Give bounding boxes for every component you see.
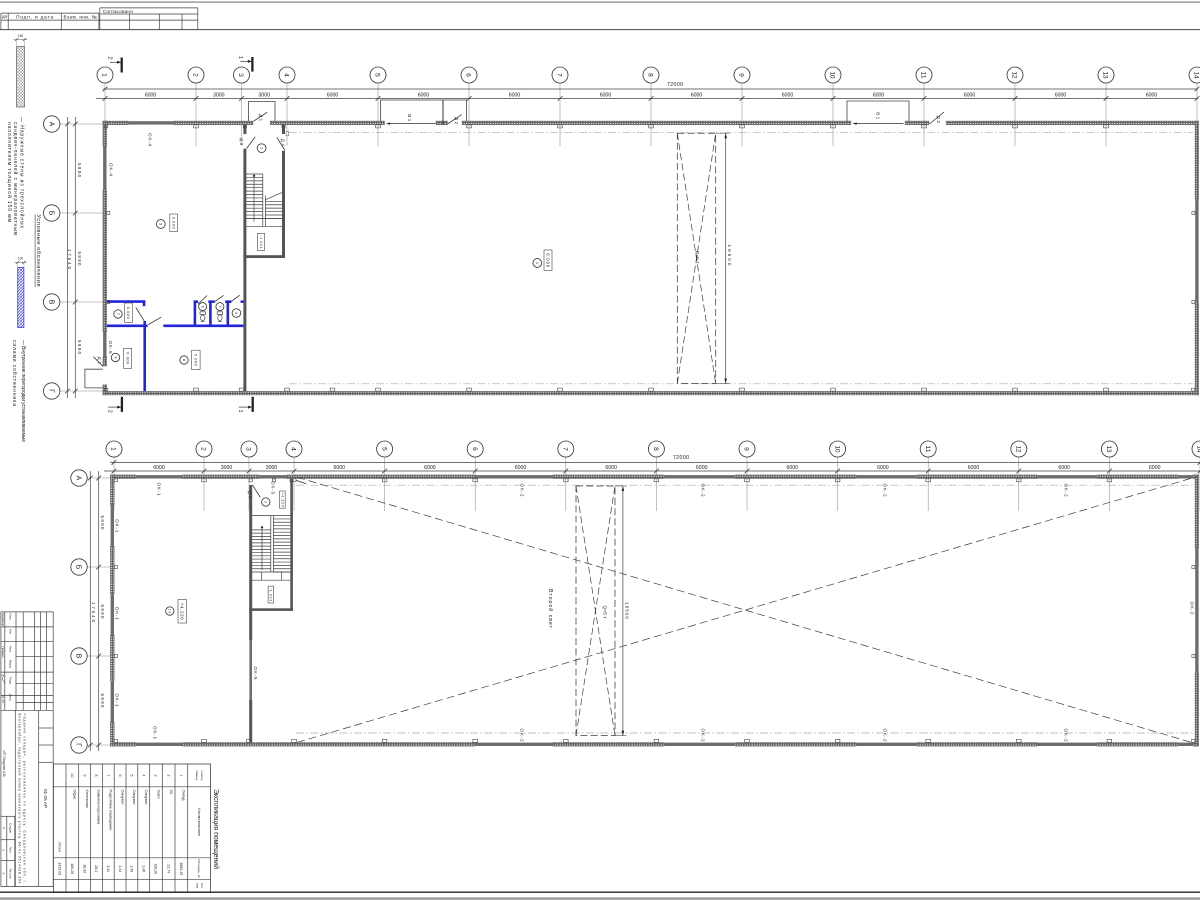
svg-text:10: 10 [168,609,172,614]
svg-text:6000: 6000 [515,465,527,471]
svg-text:8: 8 [647,73,654,77]
svg-text:— Наружные стены из трехслойны: — Наружные стены из трехслойных [18,117,25,229]
svg-text:Д2: Д2 [97,357,102,365]
svg-text:Б: Б [47,211,54,216]
svg-text:6000: 6000 [327,92,339,98]
svg-text:10: 10 [829,72,836,79]
svg-text:9: 9 [113,357,117,359]
svg-text:Б: Б [75,565,82,570]
svg-text:В: В [47,300,54,305]
svg-text:ОК-3: ОК-3 [271,481,276,494]
svg-text:1: 1 [101,73,108,77]
svg-text:Наименование: Наименование [197,808,201,836]
svg-text:Лист: Лист [9,847,13,855]
svg-text:5880: 5880 [77,163,82,178]
svg-text:16500: 16500 [625,602,630,619]
svg-text:ОК-1: ОК-1 [157,483,162,496]
svg-text:Листов: Листов [9,869,13,879]
svg-text:сандвич-панелей с минераловатн: сандвич-панелей с минераловатным [12,122,19,236]
svg-text:2: 2 [259,147,263,149]
svg-text:Согласовано: Согласовано [103,9,133,14]
svg-text:Котельная: Котельная [85,790,89,808]
svg-text:Q=5 т: Q=5 т [601,606,607,620]
svg-text:2: 2 [166,774,170,776]
svg-text:8: 8 [652,447,659,451]
svg-text:01-25 АР: 01-25 АР [43,789,48,808]
svg-text:ОК-4: ОК-4 [109,163,114,176]
svg-text:2: 2 [107,410,113,413]
svg-text:Разработал: Разработал [1,613,5,626]
svg-text:7: 7 [561,447,568,451]
svg-text:8: 8 [94,774,98,776]
svg-text:6000: 6000 [873,92,885,98]
svg-text:-1.024: -1.024 [259,235,263,248]
svg-text:Подп. и дата: Подп. и дата [16,14,53,19]
svg-text:28,4: 28,4 [94,865,98,872]
svg-text:Г: Г [47,389,54,393]
svg-text:В1: В1 [407,114,412,121]
svg-text:6000: 6000 [1055,92,1067,98]
svg-text:6000: 6000 [605,465,617,471]
svg-text:5880: 5880 [100,605,105,620]
svg-text:№док: №док [8,660,12,669]
svg-text:Площадь, м²: Площадь, м² [197,859,201,878]
svg-text:1,44: 1,44 [118,865,122,872]
svg-text:Проверил: Проверил [1,647,5,658]
svg-text:3: 3 [154,774,158,776]
svg-text:В: В [75,654,82,659]
svg-text:Санузел: Санузел [144,790,148,805]
svg-text:3: 3 [159,223,163,225]
svg-text:100: 100 [18,257,24,261]
svg-text:11: 11 [924,446,931,453]
svg-text:2: 2 [200,447,207,451]
svg-text:Взам. инв. №: Взам. инв. № [64,14,97,19]
svg-text:ОК-2: ОК-2 [519,729,524,742]
svg-text:Д2: Д2 [454,117,459,125]
svg-text:силами собственника: силами собственника [11,340,17,406]
svg-text:Второй свет: Второй свет [547,589,554,629]
svg-text:1: 1 [110,447,117,451]
svg-text:6000: 6000 [691,92,703,98]
svg-text:1423,03: 1423,03 [57,862,61,875]
svg-text:ОК-1: ОК-1 [115,607,120,620]
svg-text:Д4: Д4 [247,491,252,499]
svg-text:Подсобное помещение: Подсобное помещение [109,790,113,831]
svg-text:7: 7 [556,73,563,77]
svg-text:помещ.: помещ. [195,770,199,780]
svg-text:6000: 6000 [153,465,165,471]
svg-text:9: 9 [82,774,86,776]
svg-text:6000: 6000 [877,465,889,471]
svg-text:6000: 6000 [424,465,436,471]
svg-text:7: 7 [116,313,120,315]
svg-text:5880: 5880 [100,694,105,709]
svg-text:Холл: Холл [156,790,160,799]
svg-text:Д2: Д2 [936,116,941,124]
svg-text:Стадия: Стадия [9,823,13,833]
svg-text:9: 9 [743,447,750,451]
svg-text:В1: В1 [875,112,880,119]
svg-text:ОК-2: ОК-2 [1063,729,1068,742]
svg-text:1,46: 1,46 [142,865,146,872]
svg-text:72000: 72000 [667,82,683,88]
svg-text:4: 4 [290,447,297,451]
svg-text:5: 5 [374,73,381,77]
svg-text:0.000: 0.000 [125,352,129,364]
svg-text:1: 1 [237,56,243,59]
svg-text:3,11: 3,11 [106,865,110,872]
svg-text:6000: 6000 [968,465,980,471]
svg-text:6000: 6000 [334,465,346,471]
svg-text:Д4: Д4 [281,139,286,147]
svg-text:11: 11 [920,72,927,79]
svg-text:Итого: Итого [57,842,61,852]
svg-text:3000: 3000 [258,92,270,98]
svg-text:+4.220: +4.220 [180,603,185,621]
svg-text:14: 14 [1193,72,1200,79]
svg-text:Комната персонала: Комната персонала [97,790,101,826]
svg-text:ОК-2: ОК-2 [700,729,705,742]
svg-text:1883,45: 1883,45 [179,862,183,875]
svg-text:0.000: 0.000 [193,354,197,366]
svg-text:6: 6 [118,774,122,776]
svg-text:12: 12 [1014,445,1021,452]
svg-text:Экспликация помещений: Экспликация помещений [212,789,220,869]
svg-text:0.000: 0.000 [126,307,130,319]
svg-text:ОК-4: ОК-4 [147,133,152,146]
svg-text:Офис: Офис [73,790,77,800]
svg-text:-1.024: -1.024 [269,588,273,601]
svg-text:ОК-1: ОК-1 [115,519,120,532]
svg-text:1,49: 1,49 [130,865,134,872]
svg-text:2: 2 [107,56,113,59]
svg-text:5: 5 [380,447,387,451]
svg-text:14: 14 [1196,446,1200,453]
svg-text:1: 1 [237,409,243,412]
svg-text:3: 3 [2,849,6,851]
svg-text:0.000: 0.000 [546,253,551,268]
svg-text:5880: 5880 [77,340,82,355]
svg-text:5880: 5880 [100,516,105,531]
svg-text:3000: 3000 [266,465,278,471]
svg-text:0.000: 0.000 [171,217,175,229]
svg-text:Склад: Склад [182,790,186,802]
svg-text:ОК-1: ОК-1 [115,694,120,707]
svg-text:13: 13 [1105,446,1112,453]
svg-text:Кол.: Кол. [200,883,204,889]
svg-text:4: 4 [234,312,238,314]
svg-text:3: 3 [237,73,244,77]
svg-text:Изм: Изм [8,614,12,620]
svg-text:3000: 3000 [213,92,225,98]
svg-text:6000: 6000 [782,92,794,98]
svg-text:Кол.: Кол. [8,629,12,635]
svg-text:13: 13 [1102,72,1109,79]
svg-text:Д3: Д3 [239,138,244,146]
svg-text:Номер: Номер [200,770,204,780]
svg-text:6000: 6000 [787,465,799,471]
svg-text:наполнителем толщиной 150 мм: наполнителем толщиной 150 мм [6,122,13,223]
svg-text:ОК-2: ОК-2 [882,729,887,742]
svg-text:6000: 6000 [1149,465,1161,471]
svg-text:Г: Г [75,743,82,747]
svg-text:10: 10 [70,773,74,777]
svg-text:6: 6 [471,447,478,451]
svg-text:6: 6 [2,873,6,875]
svg-text:6000: 6000 [145,92,157,98]
svg-text:160,26: 160,26 [70,863,74,874]
svg-text:Санузел: Санузел [132,790,136,805]
svg-text:118,16: 118,16 [154,863,158,874]
svg-text:5: 5 [130,774,134,776]
svg-text:7: 7 [106,774,110,776]
svg-text:6: 6 [465,73,472,77]
svg-text:9: 9 [738,73,745,77]
svg-text:Дата: Дата [8,694,12,701]
svg-text:18,92: 18,92 [82,864,86,873]
svg-text:А: А [75,476,82,481]
svg-text:6000: 6000 [1058,465,1070,471]
svg-text:2: 2 [264,501,268,503]
svg-text:4: 4 [283,73,290,77]
svg-text:6000: 6000 [600,92,612,98]
svg-text:Q=5 т: Q=5 т [694,251,700,265]
svg-text:«Здание склада», расположенное: «Здание склада», расположенное по адресу… [22,714,26,884]
svg-text:1: 1 [535,262,539,264]
svg-text:ОК-5: ОК-5 [253,667,258,680]
svg-text:8: 8 [182,359,186,361]
svg-text:6: 6 [200,306,204,308]
svg-text:Д1: Д1 [258,114,263,121]
svg-text:ОК-1: ОК-1 [152,726,157,739]
svg-text:Условные обозначения: Условные обозначения [35,215,41,287]
svg-text:4: 4 [141,774,145,776]
svg-text:10: 10 [833,446,840,453]
svg-text:А: А [47,122,54,127]
svg-text:6000: 6000 [696,465,708,471]
svg-text:ИП Пищулин А.В.: ИП Пищулин А.В. [2,751,6,778]
svg-text:дл: дл [2,14,8,19]
svg-text:Р: Р [2,827,6,829]
svg-text:21,74: 21,74 [166,864,170,873]
svg-text:1: 1 [179,774,183,776]
svg-text:ОК-2: ОК-2 [1190,602,1195,615]
svg-text:ЛК: ЛК [169,790,173,795]
svg-text:6000: 6000 [1146,92,1158,98]
svg-text:Екатеринбург, кадастровый номе: Екатеринбург, кадастровый номер земельно… [18,714,22,884]
svg-text:5880: 5880 [77,252,82,267]
svg-text:01.25: 01.25 [1,695,5,703]
svg-text:Санузел: Санузел [120,790,124,805]
svg-text:6000: 6000 [964,92,976,98]
svg-text:Лист: Лист [8,646,12,654]
svg-text:— Внутренние перегородки устан: — Внутренние перегородки устанавливаемые [20,340,26,442]
svg-text:3: 3 [245,447,252,451]
svg-text:5: 5 [218,306,222,308]
svg-text:пом.: пом. [195,883,198,889]
svg-text:+4.220: +4.220 [280,493,284,507]
svg-text:2: 2 [192,73,199,77]
svg-text:12: 12 [1011,72,1018,79]
svg-text:6000: 6000 [418,92,430,98]
svg-text:Подп.: Подп. [8,677,12,685]
svg-text:6000: 6000 [509,92,521,98]
svg-text:72000: 72000 [673,455,689,461]
svg-text:150: 150 [18,34,24,38]
svg-text:ОК-5: ОК-5 [108,341,113,354]
svg-text:3000: 3000 [221,465,233,471]
